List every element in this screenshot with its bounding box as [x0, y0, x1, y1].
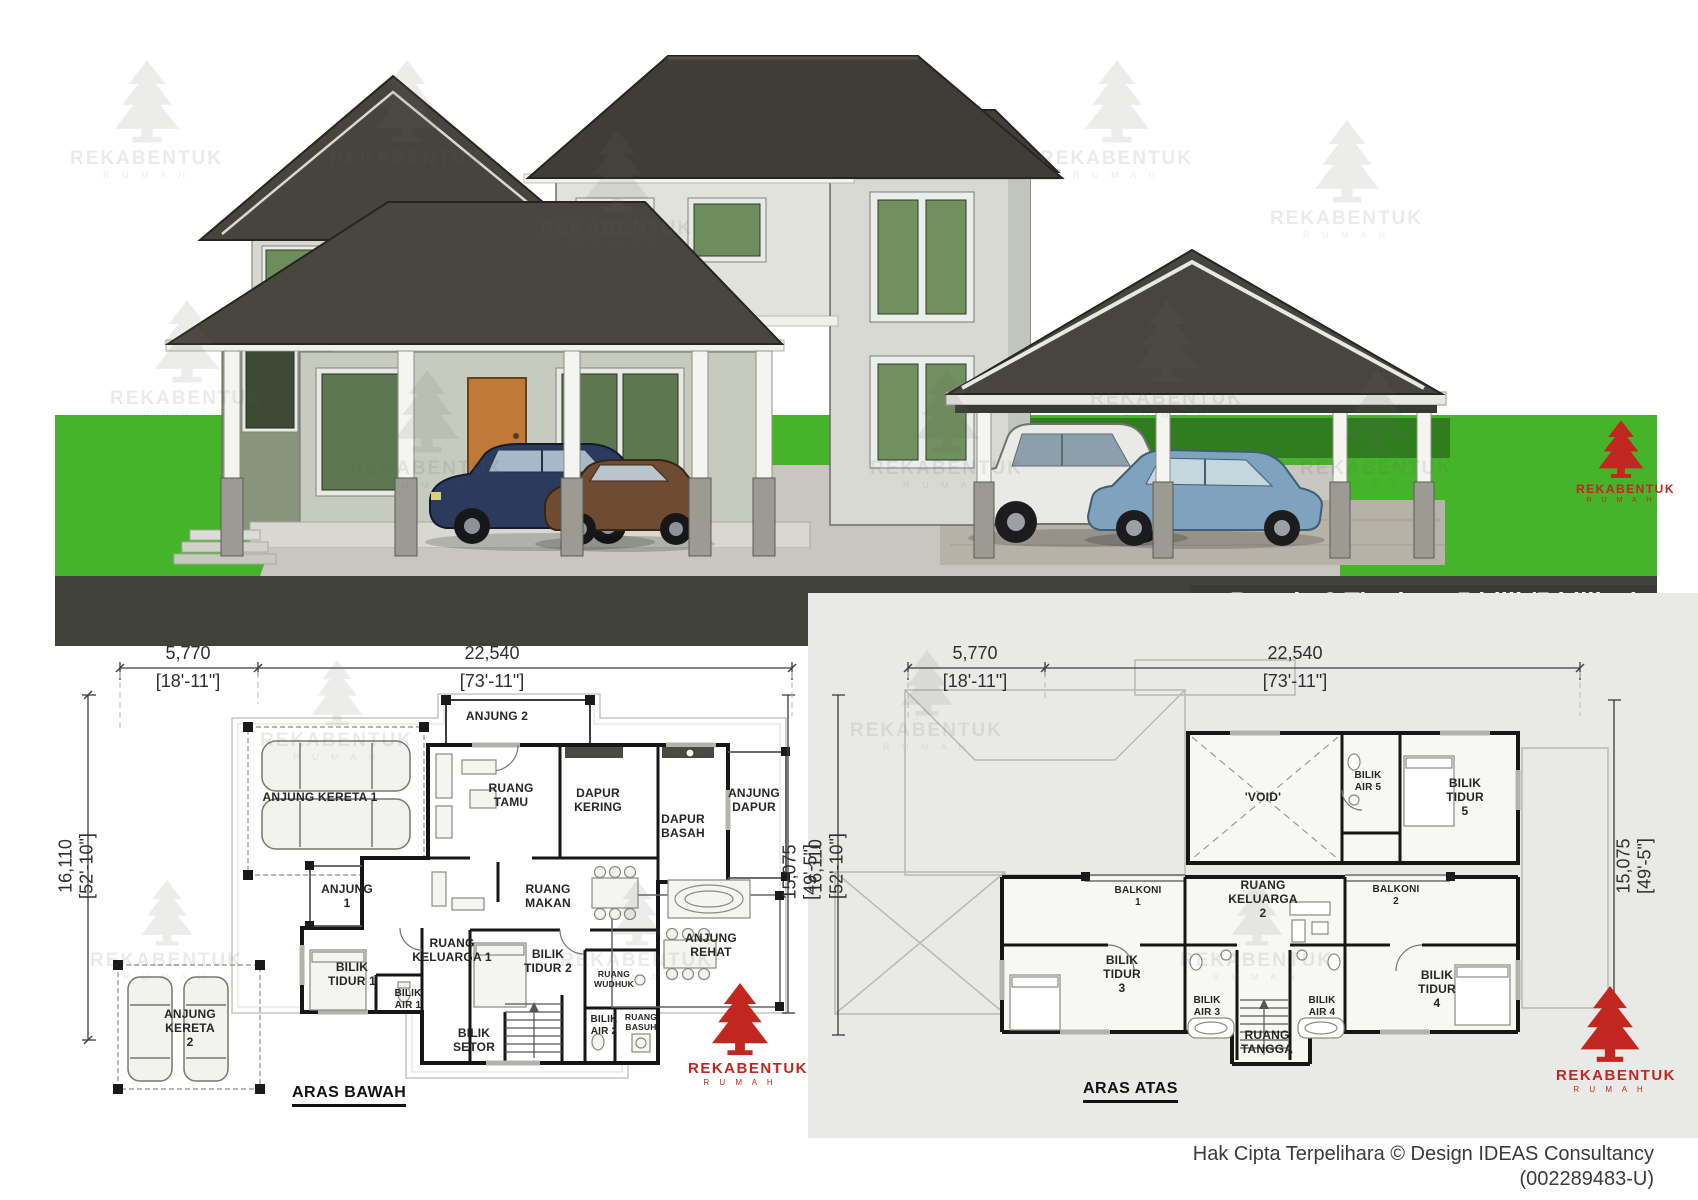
caption-aras-bawah: ARAS BAWAH	[292, 1084, 406, 1107]
room-label-anjung1: ANJUNG 1	[321, 882, 373, 910]
architecture-sheet: Banglo 2 Tingkat - 5 bilik/5 bilik air 5…	[0, 0, 1698, 1200]
room-label-anjung-kereta2: ANJUNG KERETA 2	[164, 1007, 216, 1049]
room-label-void: 'VOID'	[1245, 790, 1281, 804]
room-label-bilik-setor: BILIK SETOR	[453, 1026, 495, 1054]
dim-atas-right-ft: [49'-5"]	[1634, 838, 1655, 894]
dim-bawah-left-ft: [52'-10"]	[76, 833, 97, 899]
dim-atas-right: 15,075 [49'-5"]	[1613, 838, 1654, 894]
room-label-ruang-keluarga2: RUANG KELUARGA 2	[1228, 878, 1298, 920]
dim-bawah-a-mm: 5,770	[165, 644, 210, 662]
brand-sub: R U M A H	[688, 1078, 792, 1087]
room-label-bilik-air5: BILIK AIR 5	[1354, 770, 1381, 794]
brand-name: REKABENTUK	[1576, 482, 1666, 496]
dim-atas-a-ft: [18'-11"]	[943, 672, 1008, 690]
room-label-bilik-air3: BILIK AIR 3	[1193, 995, 1220, 1019]
room-label-bilik-air2: BILIK AIR 2	[590, 1014, 617, 1038]
copyright-line2: (002289483-U)	[1193, 1167, 1654, 1192]
room-label-balkoni1: BALKONI 1	[1115, 885, 1162, 909]
dim-bawah-left: 16,110 [52'-10"]	[55, 833, 96, 899]
room-label-dapur-basah: DAPUR BASAH	[661, 812, 705, 840]
dim-bawah-right-mm: 15,075	[779, 844, 800, 900]
dim-atas-left-mm: 16,110	[805, 833, 826, 899]
brand-logo-center: REKABENTUK R U M A H	[688, 983, 792, 1087]
room-label-bilik-tidur3: BILIK TIDUR 3	[1103, 953, 1141, 995]
brand-sub: R U M A H	[1556, 1085, 1664, 1094]
room-label-ruang-keluarga1: RUANG KELUARGA 1	[412, 936, 492, 964]
room-label-bilik-air4: BILIK AIR 4	[1308, 995, 1335, 1019]
room-label-ruang-wudhuk: RUANG WUDHUK	[594, 969, 634, 989]
brand-sub: R U M A H	[1576, 497, 1666, 504]
dim-atas-left-ft: [52'-10"]	[826, 833, 847, 899]
room-label-bilik-tidur2: BILIK TIDUR 2	[524, 947, 572, 975]
brand-name: REKABENTUK	[688, 1060, 792, 1077]
dim-atas-left: 16,110 [52'-10"]	[805, 833, 846, 899]
brand-tree-icon	[705, 983, 775, 1060]
room-label-dapur-kering: DAPUR KERING	[574, 786, 622, 814]
dim-atas-a-mm: 5,770	[952, 644, 997, 662]
brand-name: REKABENTUK	[1556, 1067, 1664, 1084]
brand-tree-icon	[1573, 986, 1647, 1067]
room-label-anjung2: ANJUNG 2	[466, 709, 528, 723]
dim-atas-right-mm: 15,075	[1613, 838, 1634, 894]
room-label-ruang-basuh: RUANG BASUH	[625, 1012, 657, 1032]
brand-logo-render: REKABENTUK R U M A H	[1576, 420, 1666, 504]
copyright-line1: Hak Cipta Terpelihara © Design IDEAS Con…	[1193, 1142, 1654, 1167]
dim-bawah-b-mm: 22,540	[464, 644, 519, 662]
room-label-anjung-kereta1: ANJUNG KERETA 1	[262, 790, 377, 804]
dim-atas-b-mm: 22,540	[1267, 644, 1322, 662]
room-label-bilik-tidur4: BILIK TIDUR 4	[1418, 968, 1456, 1010]
room-label-ruang-tangga: RUANG TANGGA	[1241, 1028, 1293, 1056]
room-label-bilik-air1: BILIK AIR 1	[394, 988, 421, 1012]
brand-logo-bottom-right: REKABENTUK R U M A H	[1556, 986, 1664, 1094]
dim-bawah-left-mm: 16,110	[55, 833, 76, 899]
caption-aras-atas: ARAS ATAS	[1083, 1080, 1178, 1103]
room-label-ruang-tamu: RUANG TAMU	[489, 781, 534, 809]
floor-plans-linework	[0, 0, 1698, 1200]
room-label-anjung-rehat: ANJUNG REHAT	[685, 931, 737, 959]
copyright-footer: Hak Cipta Terpelihara © Design IDEAS Con…	[1193, 1142, 1654, 1192]
room-label-bilik-tidur1: BILIK TIDUR 1	[328, 960, 376, 988]
dim-atas-b-ft: [73'-11"]	[1263, 672, 1328, 690]
dim-bawah-a-ft: [18'-11"]	[156, 672, 221, 690]
plan-aras-atas	[832, 660, 1621, 1064]
room-label-bilik-tidur5: BILIK TIDUR 5	[1446, 776, 1484, 818]
room-label-anjung-dapur: ANJUNG DAPUR	[728, 786, 780, 814]
brand-tree-icon	[1593, 420, 1649, 482]
room-label-ruang-makan: RUANG MAKAN	[525, 882, 571, 910]
dim-bawah-b-ft: [73'-11"]	[460, 672, 525, 690]
room-label-balkoni2: BALKONI 2	[1373, 884, 1420, 908]
